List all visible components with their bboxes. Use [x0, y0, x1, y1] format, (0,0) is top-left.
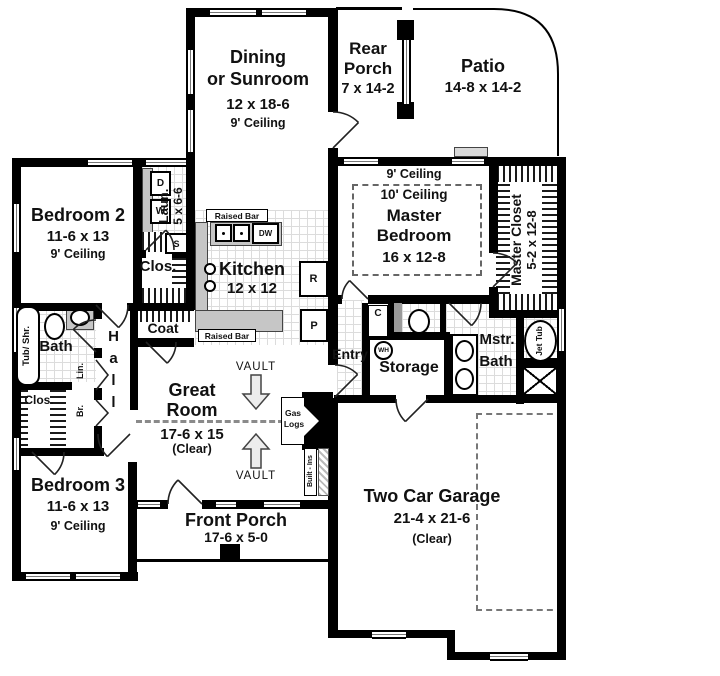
door-arc-master-bedroom: [342, 281, 368, 299]
master-closet-label: Master Closet 5-2 x 12-8: [504, 175, 544, 305]
wall: [489, 165, 498, 253]
master-ceiling9: 9' Ceiling: [386, 168, 441, 181]
wall: [94, 348, 102, 358]
laundry-name: Laun.: [157, 189, 172, 224]
water-heater-label: WH: [378, 347, 389, 354]
entry-label: Entry: [332, 347, 368, 361]
great-room-name: Great: [168, 381, 215, 399]
porch-post: [397, 102, 414, 119]
porch-railing: [402, 40, 411, 104]
wall: [489, 310, 566, 318]
master-bath-label: Mstr.: [479, 332, 514, 347]
gas-logs-label2: Logs: [284, 420, 304, 429]
wall: [362, 332, 370, 398]
jet-tub-label: Jet Tub: [534, 312, 546, 370]
window: [186, 110, 195, 152]
raised-bar-bottom-plate: Raised Bar: [198, 329, 256, 342]
wall: [94, 388, 102, 400]
pantry-label: P: [310, 320, 317, 332]
patio-dims: 14-8 x 14-2: [445, 80, 522, 95]
window: [264, 500, 300, 509]
wall: [328, 8, 338, 112]
master-dims: 16 x 12-8: [382, 250, 445, 265]
bath-label: Bath: [39, 339, 72, 354]
kitchen-sink: [215, 224, 232, 242]
master-ceiling10: 10' Ceiling: [381, 188, 448, 202]
window: [76, 572, 120, 581]
window: [88, 158, 132, 167]
front-porch-column: [220, 544, 240, 561]
vanity-sink-icon: [455, 340, 474, 362]
cooktop-burner-icon: [204, 263, 216, 275]
window: [490, 652, 528, 661]
raised-bar-top-plate: Raised Bar: [206, 209, 268, 222]
dining-dims: 12 x 18-6: [226, 97, 289, 112]
garage-dims: 21-4 x 21-6: [394, 511, 471, 526]
built-ins-label: Built - Ins: [306, 443, 316, 499]
kitchen-sink: [233, 224, 250, 242]
garage-clear: (Clear): [412, 533, 452, 546]
shower: [522, 366, 558, 396]
bedroom3-ceiling: 9' Ceiling: [50, 520, 105, 533]
wall: [328, 148, 338, 303]
porch-post: [397, 20, 414, 40]
toilet-icon: [44, 313, 65, 340]
c-closet-label: C: [374, 309, 381, 319]
garage-dashed-area: [476, 413, 563, 611]
refrigerator-box: R: [299, 261, 328, 297]
bedroom2-dims: 11-6 x 13: [47, 229, 110, 244]
wall: [12, 448, 104, 456]
window: [138, 500, 160, 509]
bedroom3-name: Bedroom 3: [31, 476, 125, 494]
rear-porch-dims: 7 x 14-2: [341, 82, 394, 97]
wall: [444, 334, 451, 396]
door-arc-storage: [396, 399, 428, 422]
wall: [557, 157, 566, 660]
master-name2: Bedroom: [377, 227, 452, 244]
water-heater-circle: WH: [374, 341, 393, 360]
built-ins-hatch: [318, 448, 329, 496]
dining-ceiling: 9' Ceiling: [230, 117, 285, 130]
vault-upper-label: VAULT: [236, 362, 276, 374]
wall: [130, 303, 138, 410]
jet-tub-text: Jet Tub: [535, 326, 545, 356]
master-bath-label2: Bath: [479, 354, 512, 369]
wall: [94, 303, 102, 319]
toilet-icon: [408, 309, 430, 334]
kitchen-dims: 12 x 12: [227, 281, 277, 296]
raised-bar-top-label: Raised Bar: [215, 211, 259, 221]
great-room-ceiling-break-line: [136, 420, 284, 423]
rear-porch-name: Rear: [349, 40, 387, 57]
wall: [136, 338, 194, 347]
storage-label: Storage: [379, 360, 439, 376]
laundry-label: Laun. 5 x 6-6: [153, 164, 189, 248]
hall-closet-label: Clos.: [140, 259, 177, 274]
floor-plan: D W S DW R P WH Raised Bar Raised Bar Di…: [0, 0, 720, 676]
dishwasher-label: DW: [259, 229, 272, 238]
coat-label: Coat: [147, 321, 178, 335]
wall: [426, 395, 566, 403]
vault-arrow-up-icon: [243, 434, 269, 468]
bath-sink-icon: [70, 309, 90, 326]
patio-step: [454, 147, 488, 157]
refrigerator-label: R: [310, 273, 318, 285]
door-arc-rear-porch: [333, 112, 359, 148]
bedroom2-ceiling: 9' Ceiling: [50, 248, 105, 261]
window: [216, 500, 236, 509]
pantry-box: P: [300, 309, 328, 342]
front-porch-name: Front Porch: [185, 511, 287, 529]
built-ins-text: Built - Ins: [307, 455, 315, 487]
window: [26, 572, 70, 581]
raised-bar-bottom-label: Raised Bar: [205, 331, 249, 341]
window: [372, 630, 406, 639]
tub-shower-text: Tub/ Shr.: [22, 326, 33, 366]
rear-porch-name2: Porch: [344, 60, 392, 77]
hall-label: Hall: [105, 328, 122, 416]
kitchen-name: Kitchen: [219, 260, 285, 278]
bed3-closet-label: Clos.: [24, 394, 53, 406]
master-closet-dims: 5-2 x 12-8: [525, 210, 540, 269]
garage-name: Two Car Garage: [364, 487, 501, 505]
wall: [368, 295, 489, 304]
front-porch-dims: 17-6 x 5-0: [204, 530, 268, 544]
master-name: Master: [387, 207, 442, 224]
dishwasher-box: DW: [252, 223, 279, 244]
great-room-clear: (Clear): [172, 443, 212, 456]
dining-name: Dining: [230, 48, 286, 66]
wall: [334, 395, 396, 403]
hall-closet-hatch-bottom: [142, 288, 192, 303]
dining-name2: or Sunroom: [207, 70, 309, 88]
sink-drain-icon: [222, 232, 225, 235]
window: [557, 309, 566, 351]
window: [210, 8, 256, 17]
patio-name: Patio: [461, 57, 505, 75]
linen-text: Lin.: [75, 363, 85, 379]
vanity-sink-icon: [455, 368, 474, 390]
broom-text: Br.: [75, 405, 85, 417]
bedroom2-name: Bedroom 2: [31, 206, 125, 224]
window: [12, 204, 21, 252]
wall: [336, 295, 342, 304]
wall: [133, 166, 142, 311]
cooktop-burner-icon: [204, 280, 216, 292]
tub-shower-label: Tub/ Shr.: [20, 307, 34, 385]
window: [262, 8, 306, 17]
linen-label: Lin.: [74, 354, 86, 388]
window: [12, 438, 21, 470]
door-arc-front-door: [168, 480, 202, 504]
laundry-dims: 5 x 6-6: [172, 187, 186, 224]
bedroom3-dims: 11-6 x 13: [47, 499, 110, 514]
window: [344, 157, 378, 166]
gas-logs-label: Gas: [285, 409, 301, 418]
rear-porch-edge: [336, 7, 402, 10]
broom-label: Br.: [74, 394, 86, 428]
vault-arrow-down-icon: [243, 375, 269, 409]
window: [186, 50, 195, 94]
vault-lower-label: VAULT: [236, 471, 276, 483]
great-room-name2: Room: [167, 401, 218, 419]
window: [452, 157, 484, 166]
wall: [141, 250, 146, 258]
sink-drain-icon: [240, 232, 243, 235]
great-room-dims: 17-6 x 15: [160, 427, 223, 442]
master-closet-name: Master Closet: [508, 194, 524, 286]
